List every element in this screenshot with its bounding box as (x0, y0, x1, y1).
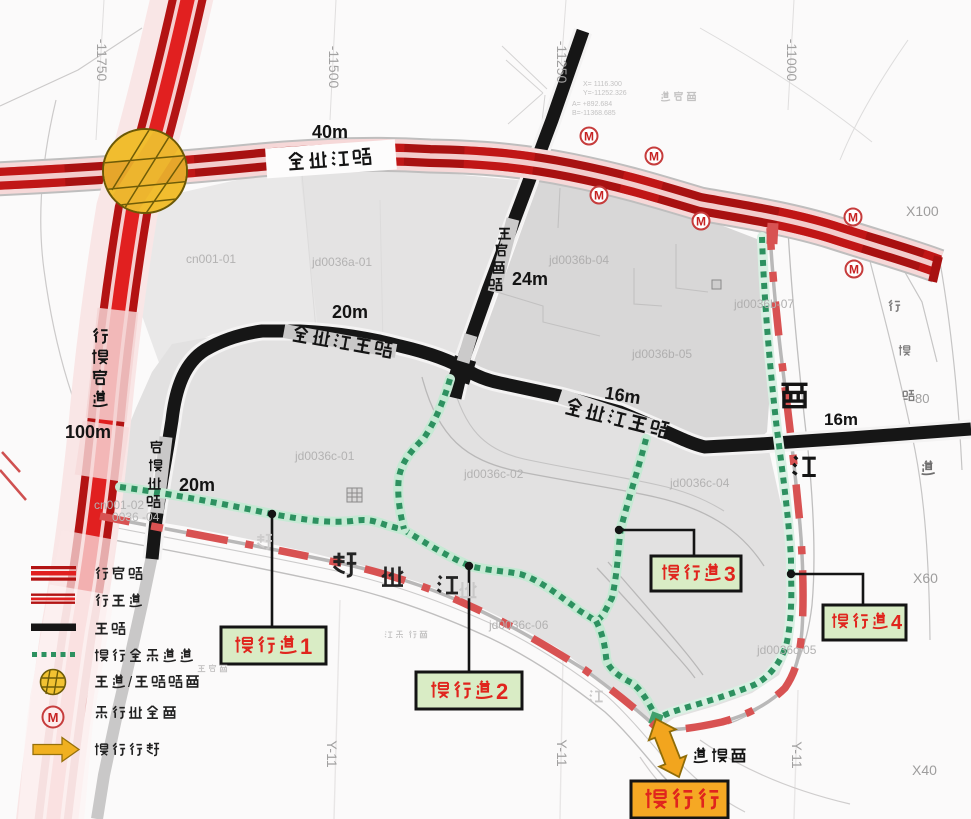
svg-text:20m: 20m (332, 302, 368, 322)
svg-text:jd0036b-04: jd0036b-04 (548, 253, 609, 267)
svg-text:Y-11: Y-11 (324, 740, 340, 767)
svg-text:M: M (584, 130, 594, 144)
svg-text:jd0036c-05: jd0036c-05 (756, 643, 817, 657)
svg-text:M: M (849, 263, 859, 277)
svg-text:X100: X100 (906, 203, 939, 219)
svg-text:0036 -04: 0036 -04 (112, 510, 160, 524)
svg-text:jd0036c-01: jd0036c-01 (294, 449, 355, 463)
svg-text:M: M (696, 215, 706, 229)
svg-text:Y-11: Y-11 (554, 739, 570, 766)
svg-text:jd0036c-06: jd0036c-06 (488, 618, 549, 632)
svg-text:X= 1116.300: X= 1116.300 (583, 81, 622, 88)
svg-text:-11750: -11750 (94, 39, 110, 82)
svg-text:M: M (848, 211, 858, 225)
svg-text:M: M (594, 189, 604, 203)
svg-text:jd0036b-05: jd0036b-05 (631, 347, 692, 361)
svg-text:A= +892.684: A= +892.684 (572, 101, 612, 108)
svg-text:3: 3 (724, 563, 736, 586)
svg-text:M: M (649, 150, 659, 164)
svg-text:B=-11368.685: B=-11368.685 (572, 110, 616, 117)
svg-text:100m: 100m (65, 422, 111, 442)
svg-text:cn001-01: cn001-01 (186, 252, 236, 266)
svg-text:2: 2 (496, 679, 508, 704)
svg-text:Y-11: Y-11 (789, 741, 805, 768)
svg-text:16m: 16m (824, 410, 858, 429)
svg-text:24m: 24m (512, 269, 548, 289)
svg-text:X40: X40 (912, 762, 937, 778)
svg-text:jd0036c-02: jd0036c-02 (463, 467, 524, 481)
svg-text:40m: 40m (312, 122, 348, 142)
svg-text:X60: X60 (913, 570, 938, 586)
svg-text:20m: 20m (179, 475, 215, 495)
svg-text:jd0036a-01: jd0036a-01 (311, 255, 372, 269)
svg-text:1: 1 (300, 634, 312, 659)
svg-text:-11250: -11250 (554, 41, 570, 84)
svg-text:-11500: -11500 (326, 46, 342, 89)
svg-text:Y=-11252.326: Y=-11252.326 (583, 90, 627, 97)
svg-text:-11000: -11000 (784, 39, 800, 82)
svg-text:M: M (48, 710, 59, 725)
svg-text:jd0036c-04: jd0036c-04 (669, 476, 730, 490)
svg-text:80: 80 (915, 391, 929, 406)
svg-text:jd0036b-07: jd0036b-07 (733, 297, 794, 311)
svg-text:4: 4 (891, 612, 903, 634)
